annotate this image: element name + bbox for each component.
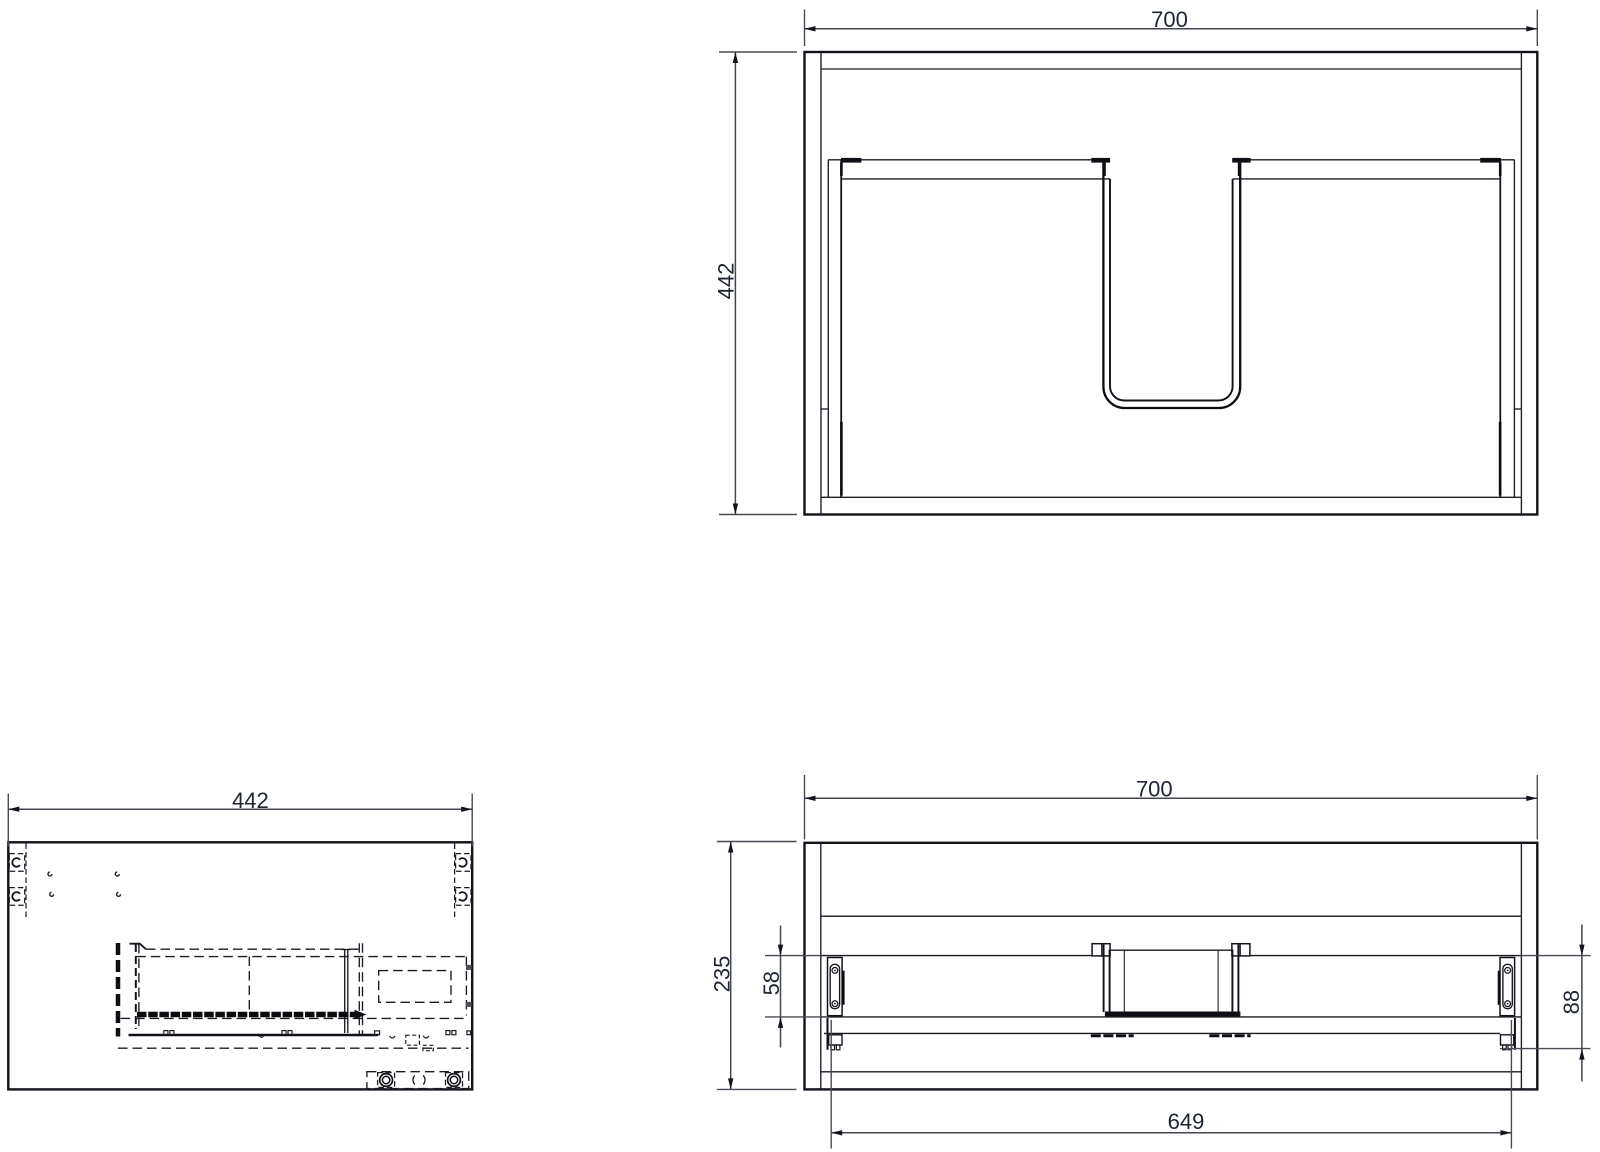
svg-text:235: 235: [710, 956, 735, 993]
svg-text:700: 700: [1136, 776, 1173, 801]
svg-text:442: 442: [713, 263, 738, 300]
svg-text:649: 649: [1168, 1109, 1205, 1134]
svg-text:700: 700: [1151, 7, 1188, 32]
svg-text:58: 58: [759, 971, 784, 995]
svg-text:442: 442: [232, 788, 269, 813]
svg-text:88: 88: [1559, 990, 1584, 1014]
